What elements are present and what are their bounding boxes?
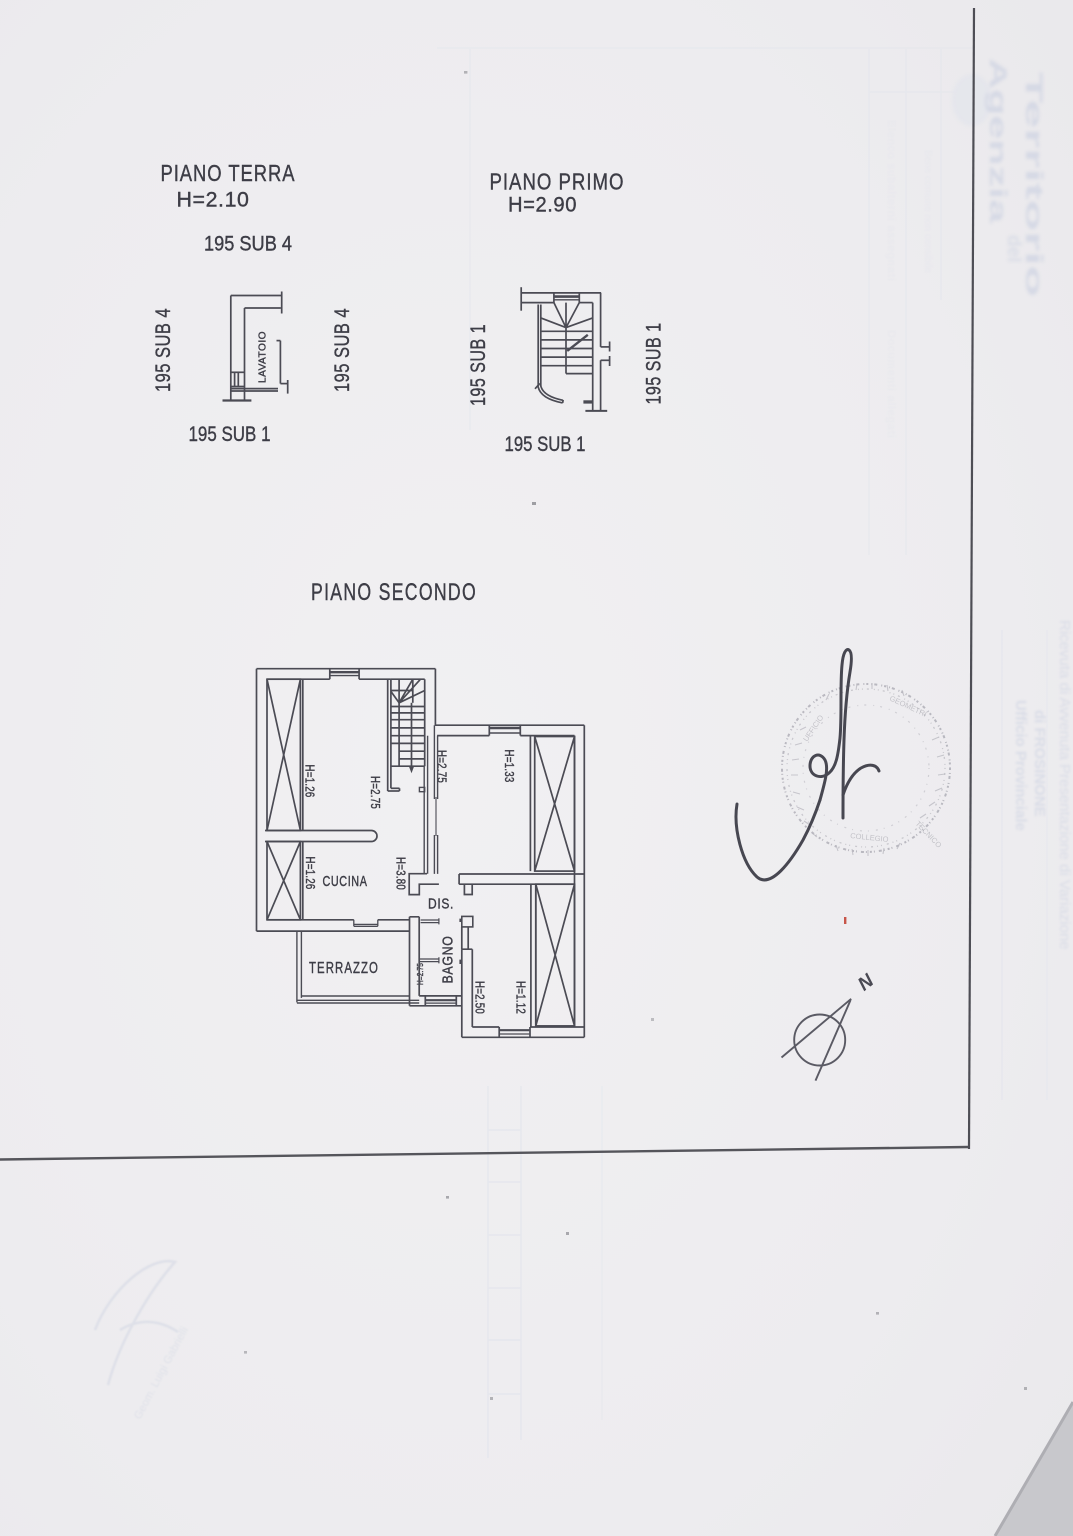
svg-text:H=1.33: H=1.33: [502, 750, 516, 783]
svg-text:di FROSINONE: di FROSINONE: [1031, 710, 1048, 817]
svg-text:del: del: [1003, 235, 1024, 262]
svg-text:H=2.10: H=2.10: [177, 188, 250, 212]
svg-text:195 SUB 1: 195 SUB 1: [466, 324, 490, 406]
svg-text:PIANO TERRA: PIANO TERRA: [161, 160, 296, 186]
svg-text:TERRAZZO: TERRAZZO: [309, 960, 379, 977]
svg-text:195 SUB 4: 195 SUB 4: [151, 308, 175, 392]
svg-text:CUCINA: CUCINA: [323, 874, 368, 890]
svg-text:Agenzia: Agenzia: [984, 58, 1011, 224]
svg-text:195 SUB 4: 195 SUB 4: [204, 232, 292, 256]
svg-text:195 SUB 4: 195 SUB 4: [330, 308, 354, 392]
svg-text:H=1.26: H=1.26: [303, 857, 317, 890]
svg-text:Territorio: Territorio: [1020, 72, 1047, 297]
svg-text:Ricevuta di Avvenuta Presentaz: Ricevuta di Avvenuta Presentazione di Va…: [1056, 620, 1073, 950]
svg-text:H=2.75: H=2.75: [435, 750, 449, 783]
svg-text:PIANO PRIMO: PIANO PRIMO: [490, 169, 625, 195]
svg-text:DIS.: DIS.: [428, 897, 454, 913]
svg-text:H=3.80: H=3.80: [394, 857, 408, 890]
svg-text:H=2.75: H=2.75: [368, 776, 382, 809]
svg-text:Bene comune non censibile: Bene comune non censibile: [922, 150, 933, 273]
svg-text:BAGNO: BAGNO: [441, 936, 457, 984]
svg-text:PIANO SECONDO: PIANO SECONDO: [311, 579, 477, 606]
svg-text:H=2.90: H=2.90: [508, 193, 577, 217]
svg-text:H=2.75: H=2.75: [416, 963, 425, 985]
svg-text:Elenco subalterni assegnati: Elenco subalterni assegnati: [885, 120, 897, 282]
svg-text:H=2.50: H=2.50: [473, 981, 487, 1014]
svg-text:195 SUB 1: 195 SUB 1: [505, 432, 586, 456]
svg-text:195 SUB 1: 195 SUB 1: [642, 323, 666, 405]
svg-text:LAVATOIO: LAVATOIO: [257, 331, 269, 383]
svg-text:Documenti allegati: Documenti allegati: [885, 330, 897, 439]
svg-text:H=1.26: H=1.26: [303, 765, 317, 798]
svg-text:195 SUB 1: 195 SUB 1: [189, 422, 271, 446]
svg-text:H=1.12: H=1.12: [514, 981, 528, 1014]
svg-text:Ufficio Provinciale: Ufficio Provinciale: [1012, 700, 1029, 831]
